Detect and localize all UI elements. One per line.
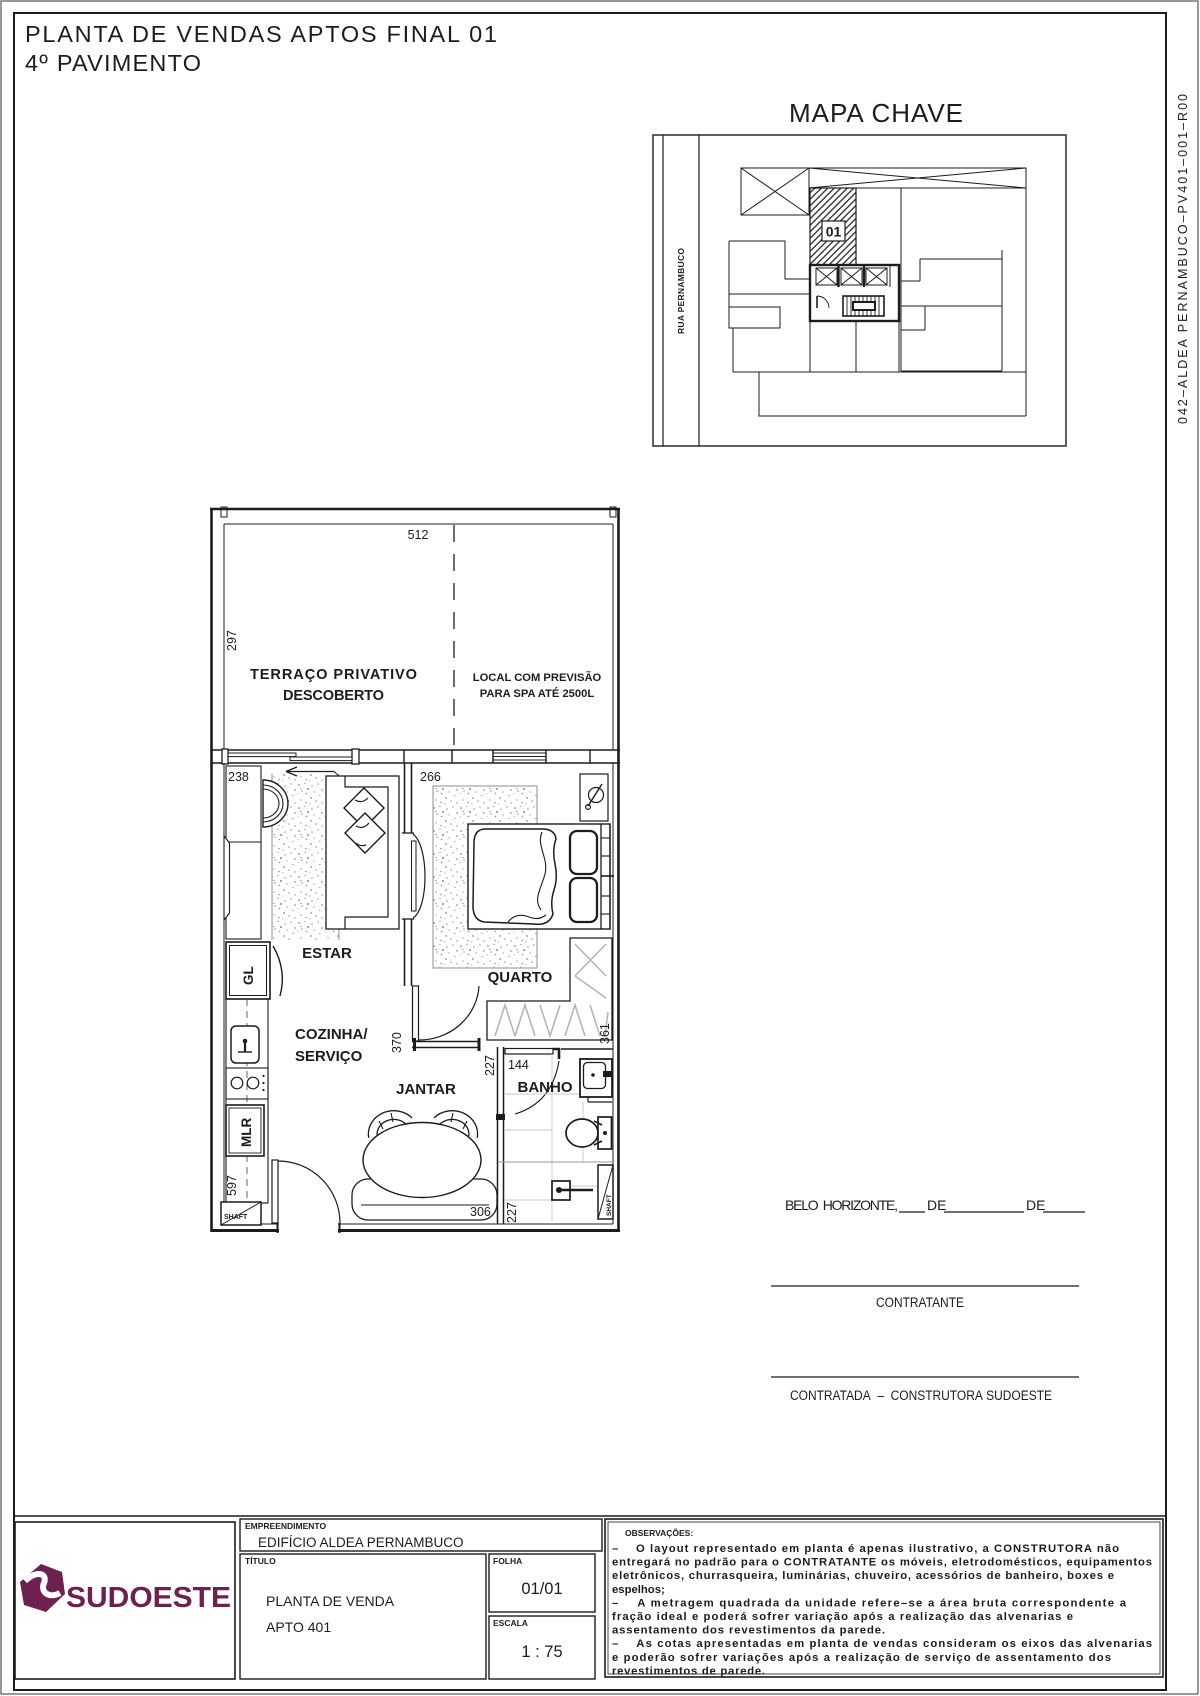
svg-text:– A metragem quadrada da un: – A metragem quadrada da unidade refere–… <box>612 1597 1127 1609</box>
svg-text:DESCOBERTO: DESCOBERTO <box>283 688 384 704</box>
svg-text:CONTRATADA – CONSTRUTORA SUD: CONTRATADA – CONSTRUTORA SUDOESTE <box>790 1388 1052 1403</box>
svg-text:– As cotas apresentadas em: – As cotas apresentadas em planta de ven… <box>612 1638 1152 1650</box>
svg-text:ESTAR: ESTAR <box>302 945 352 962</box>
svg-text:PLANTA DE VENDAS APTOS FINAL 0: PLANTA DE VENDAS APTOS FINAL 01 <box>25 21 497 47</box>
svg-text:APTO 401: APTO 401 <box>266 1619 331 1635</box>
svg-text:TERRAÇO PRIVATIVO: TERRAÇO PRIVATIVO <box>250 667 417 683</box>
svg-text:– O layout representado em: – O layout representado em planta é apen… <box>612 1543 1119 1555</box>
svg-text:DE: DE <box>927 1197 946 1213</box>
svg-text:PARA SPA ATÉ 2500L: PARA SPA ATÉ 2500L <box>480 687 595 700</box>
svg-text:238: 238 <box>228 770 249 784</box>
svg-text:e poderão sofrer variações apó: e poderão sofrer variações após a realiz… <box>612 1652 1111 1664</box>
svg-text:espelhos;: espelhos; <box>612 1584 665 1596</box>
svg-text:QUARTO: QUARTO <box>488 969 553 986</box>
svg-text:LOCAL COM PREVISÃO: LOCAL COM PREVISÃO <box>473 671 602 684</box>
svg-text:ESCALA: ESCALA <box>493 1618 528 1628</box>
svg-text:266: 266 <box>420 770 441 784</box>
svg-text:EMPREENDIMENTO: EMPREENDIMENTO <box>245 1521 326 1531</box>
svg-text:revestimentos de parede.: revestimentos de parede. <box>612 1665 765 1677</box>
svg-text:144: 144 <box>508 1058 529 1072</box>
svg-text:PLANTA DE VENDA: PLANTA DE VENDA <box>266 1593 395 1609</box>
svg-text:361: 361 <box>598 1023 612 1044</box>
svg-text:BANHO: BANHO <box>518 1079 573 1096</box>
svg-text:306: 306 <box>470 1205 491 1219</box>
svg-text:SHAFT: SHAFT <box>224 1214 248 1221</box>
svg-text:TÍTULO: TÍTULO <box>245 1556 276 1566</box>
svg-text:GL: GL <box>241 966 256 985</box>
svg-text:JANTAR: JANTAR <box>396 1081 456 1098</box>
svg-text:SUDOESTE: SUDOESTE <box>66 1582 231 1614</box>
svg-text:MAPA CHAVE: MAPA CHAVE <box>789 98 963 128</box>
svg-text:042–ALDEA PERNAMBUCO–PV401–00: 042–ALDEA PERNAMBUCO–PV401–001–R00 <box>1176 94 1190 424</box>
svg-text:assentamento dos revestimentos: assentamento dos revestimentos da parede… <box>612 1625 885 1637</box>
svg-text:01: 01 <box>826 224 842 240</box>
svg-text:fração ideal e poderá sofrer v: fração ideal e poderá sofrer variação ap… <box>612 1611 1073 1623</box>
svg-text:227: 227 <box>483 1055 497 1076</box>
svg-text:512: 512 <box>408 528 429 542</box>
svg-text:01/01: 01/01 <box>521 1580 562 1598</box>
svg-text:297: 297 <box>225 630 239 651</box>
svg-text:DE: DE <box>1026 1197 1045 1213</box>
svg-text:227: 227 <box>505 1202 519 1223</box>
svg-text:1 : 75: 1 : 75 <box>521 1643 562 1661</box>
svg-text:COZINHA/: COZINHA/ <box>295 1026 368 1043</box>
svg-text:CONTRATANTE: CONTRATANTE <box>876 1295 964 1310</box>
svg-text:eletrônicos, churrasqueira, lu: eletrônicos, churrasqueira, luminárias, … <box>612 1570 1114 1582</box>
svg-text:OBSERVAÇÕES:: OBSERVAÇÕES: <box>625 1528 693 1538</box>
svg-text:entregará no padrão para o CON: entregará no padrão para o CONTRATANTE o… <box>612 1557 1152 1569</box>
svg-text:BELO HORIZONTE,: BELO HORIZONTE, <box>785 1197 898 1213</box>
svg-text:SHAFT: SHAFT <box>606 1194 613 1216</box>
svg-text:FOLHA: FOLHA <box>493 1556 522 1566</box>
svg-text:SERVIÇO: SERVIÇO <box>295 1048 363 1065</box>
svg-text:597: 597 <box>225 1175 239 1196</box>
svg-text:370: 370 <box>390 1032 404 1053</box>
svg-text:MLR: MLR <box>239 1118 254 1147</box>
svg-text:RUA PERNAMBUCO: RUA PERNAMBUCO <box>676 248 686 334</box>
svg-text:EDIFÍCIO ALDEA PERNAMBUCO: EDIFÍCIO ALDEA PERNAMBUCO <box>258 1535 464 1550</box>
svg-text:4º PAVIMENTO: 4º PAVIMENTO <box>25 50 201 76</box>
